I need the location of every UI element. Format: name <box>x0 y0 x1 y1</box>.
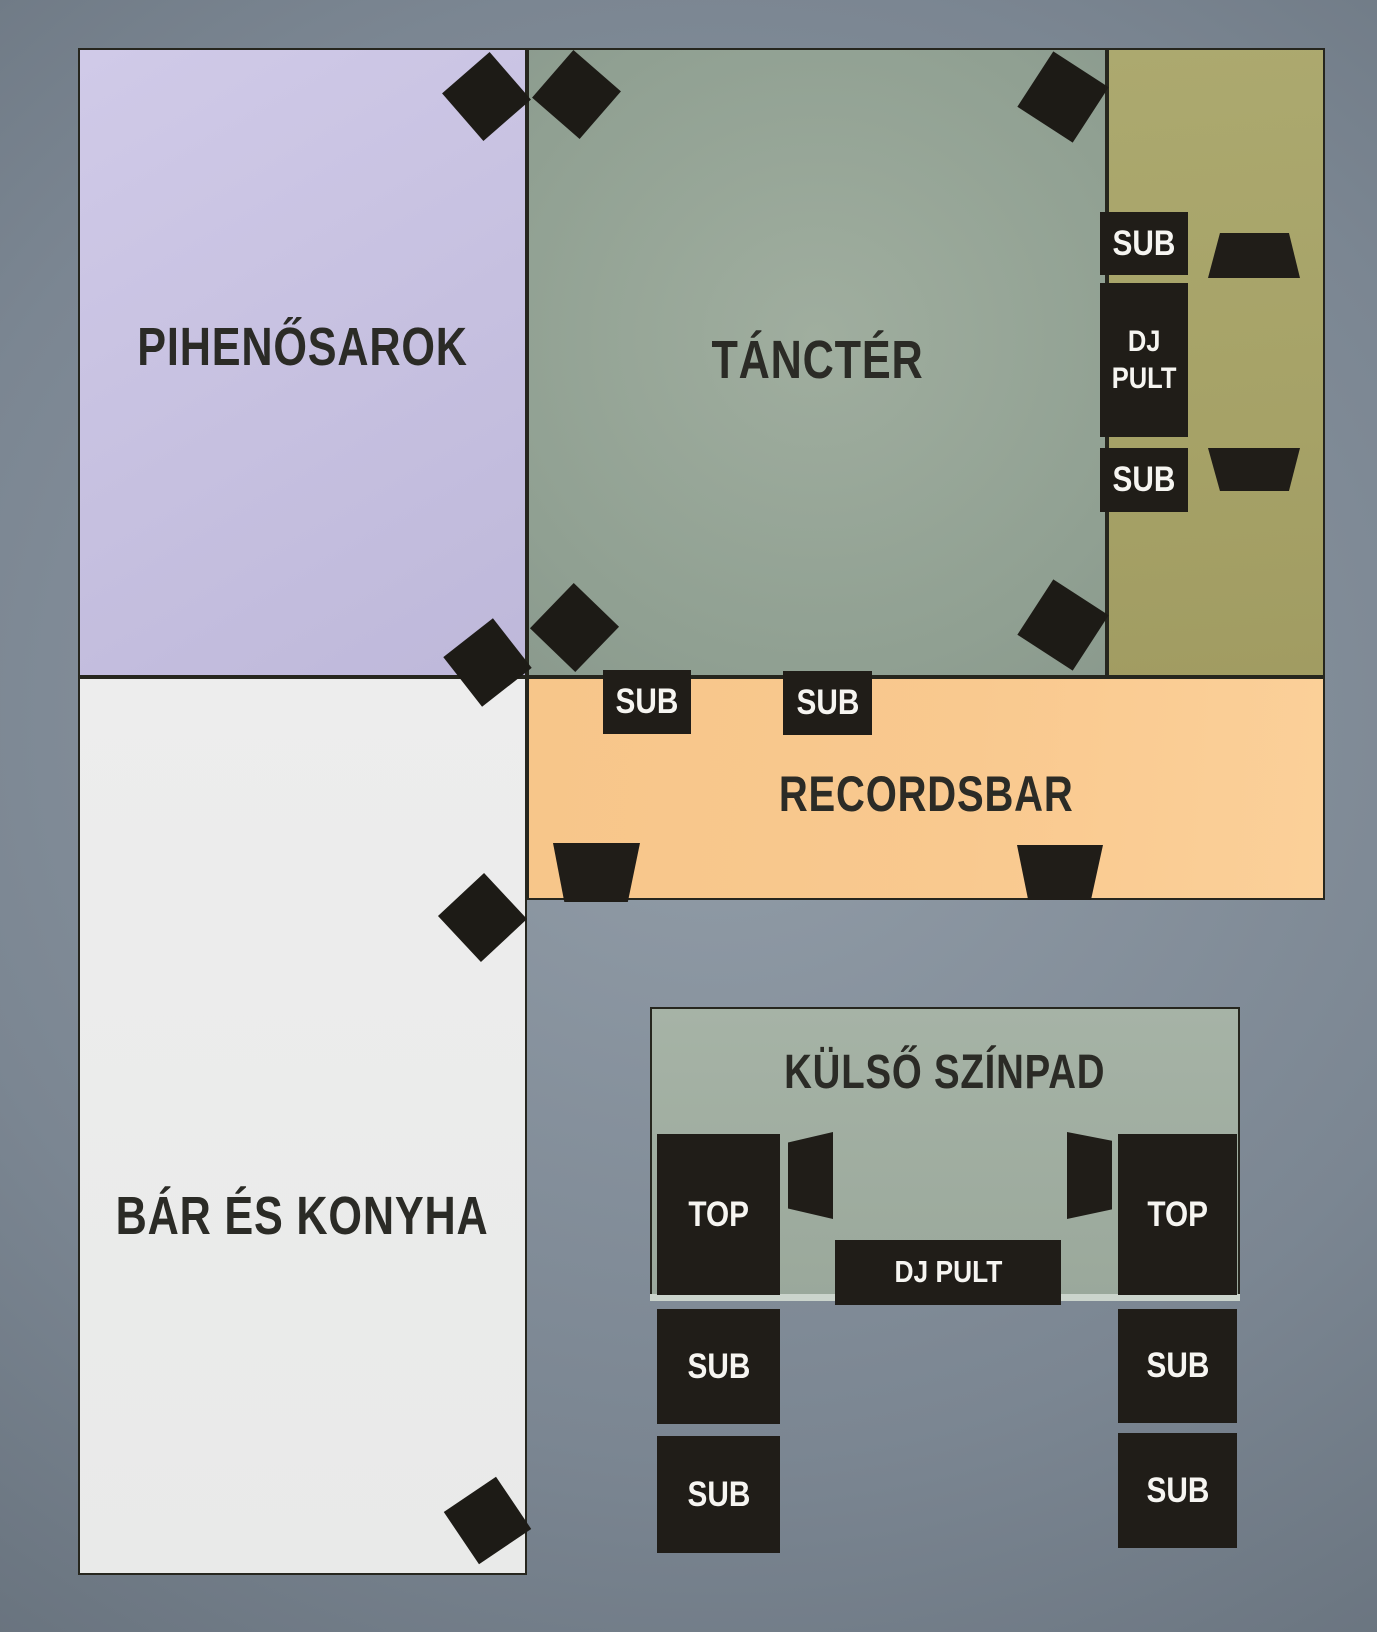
sub-speaker-box: SUB <box>603 670 691 734</box>
sub-label: SUB <box>1113 458 1176 502</box>
bar-speaker-icon <box>553 843 640 902</box>
sub-label: SUB <box>687 1473 750 1517</box>
top-label: TOP <box>688 1193 749 1237</box>
monitor-wedge-icon <box>1208 233 1300 278</box>
top-speaker-box: TOP <box>657 1134 780 1295</box>
room-label-bar-kitchen: BÁR ÉS KONYHA <box>78 1186 527 1248</box>
sub-speaker-box: SUB <box>1118 1433 1237 1548</box>
sub-label: SUB <box>1113 222 1176 266</box>
sub-label: SUB <box>687 1345 750 1389</box>
dj-booth-box: DJ PULT <box>1100 283 1188 437</box>
dj-label-line2: PULT <box>1112 360 1177 398</box>
sub-label: SUB <box>616 680 679 724</box>
sub-speaker-box: SUB <box>657 1309 780 1424</box>
pihenosarok-text: PIHENŐSAROK <box>137 318 467 377</box>
sub-speaker-box: SUB <box>783 671 872 735</box>
stage-monitor-icon <box>788 1132 833 1219</box>
top-label: TOP <box>1147 1193 1208 1237</box>
top-speaker-box: TOP <box>1118 1134 1237 1295</box>
bar-speaker-icon <box>1017 845 1103 900</box>
dj-label-line1: DJ <box>1128 323 1161 361</box>
room-bar-kitchen <box>78 677 527 1575</box>
tancter-text: TÁNCTÉR <box>711 331 923 390</box>
sub-speaker-box: SUB <box>657 1436 780 1553</box>
monitor-wedge-icon <box>1208 448 1300 491</box>
outdoor-stage-text: KÜLSŐ SZÍNPAD <box>784 1047 1105 1100</box>
room-label-pihenosarok: PIHENŐSAROK <box>78 316 527 380</box>
dj-pult-label: DJ PULT <box>894 1253 1002 1292</box>
room-label-tancter: TÁNCTÉR <box>527 328 1107 394</box>
dj-booth-box: DJ PULT <box>835 1240 1061 1305</box>
sub-speaker-box: SUB <box>1100 448 1188 512</box>
room-label-outdoor-stage: KÜLSŐ SZÍNPAD <box>650 1042 1240 1104</box>
sub-label: SUB <box>1146 1469 1209 1513</box>
sub-speaker-box: SUB <box>1118 1309 1237 1423</box>
sub-label: SUB <box>796 681 859 725</box>
bar-kitchen-text: BÁR ÉS KONYHA <box>116 1187 489 1246</box>
sub-speaker-box: SUB <box>1100 212 1188 275</box>
venue-floor-plan: PIHENŐSAROK TÁNCTÉR RECORDSBAR BÁR ÉS KO… <box>0 0 1377 1632</box>
sub-label: SUB <box>1146 1344 1209 1388</box>
stage-monitor-icon <box>1067 1132 1112 1219</box>
recordsbar-text: RECORDSBAR <box>779 767 1074 822</box>
room-label-recordsbar: RECORDSBAR <box>527 763 1325 825</box>
